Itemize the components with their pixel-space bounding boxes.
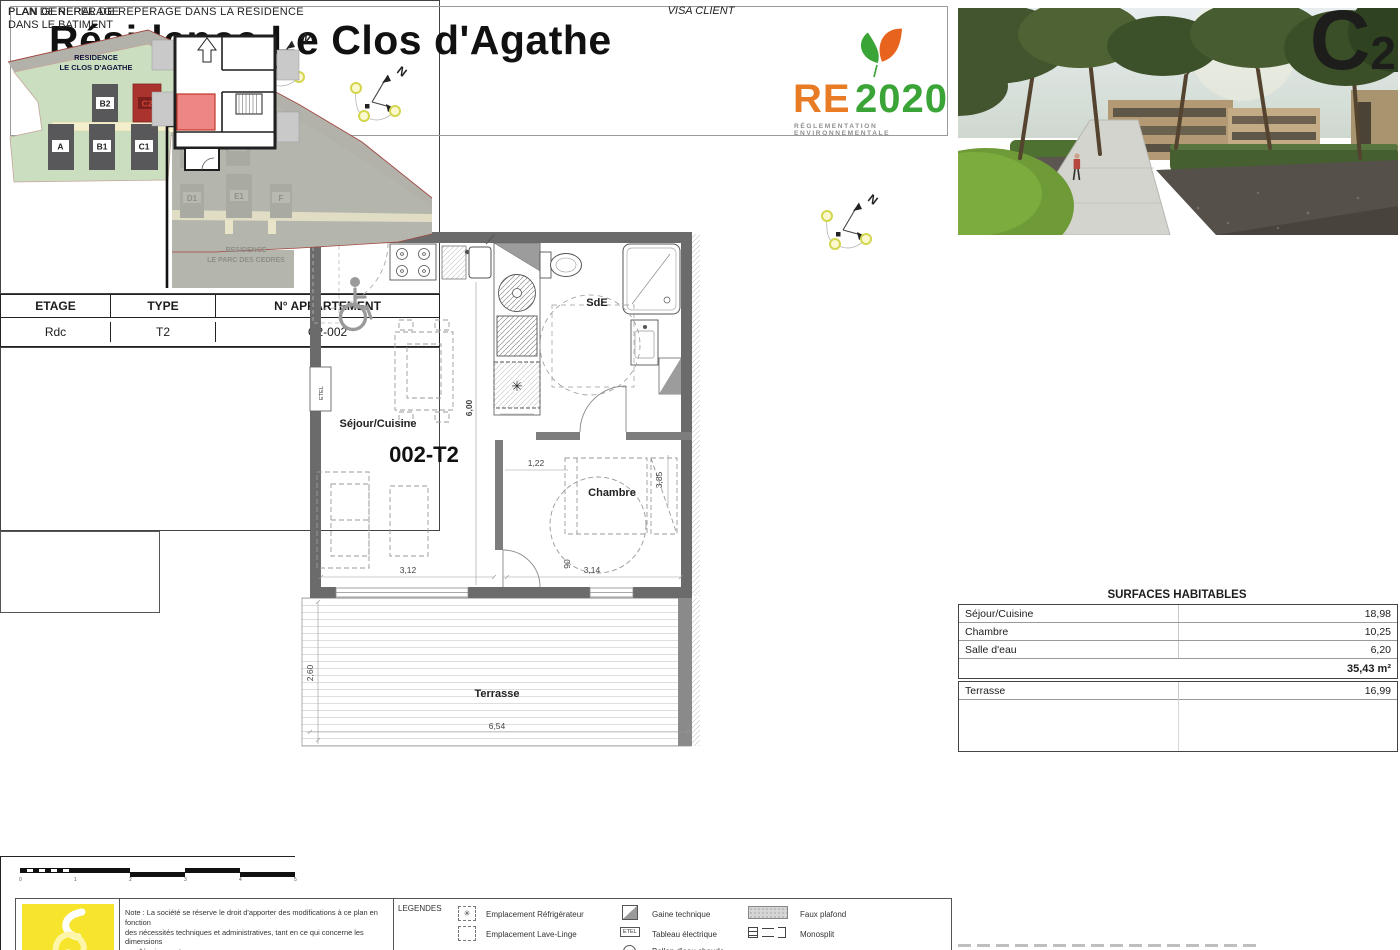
faux-plafond-legend-icon — [748, 906, 788, 919]
terrasse-label: Terrasse — [959, 682, 1179, 699]
scale-tick: 0 — [19, 877, 22, 883]
dim-hall: 1,22 — [528, 458, 545, 468]
note-line: Note : La société se réserve le droit d'… — [125, 908, 385, 928]
surface-row: Chambre 10,25 — [959, 623, 1397, 641]
bathroom-fittings — [540, 244, 681, 395]
scale-bar: 0 1 2 3 4 5 — [20, 868, 295, 880]
etel-legend-icon: ETEL — [620, 927, 640, 937]
room-label-chambre: Chambre — [588, 487, 636, 499]
scale-tick: 4 — [239, 877, 242, 883]
room-label-sejour: Séjour/Cuisine — [339, 418, 416, 430]
north-label: N — [865, 191, 880, 207]
scale-seg-1-2 — [75, 868, 130, 873]
disclaimer-note: Note : La société se réserve le droit d'… — [125, 908, 385, 950]
dim-sejour-w: 3,12 — [400, 565, 417, 575]
etel-label: ETEL — [319, 386, 325, 400]
monosplit-bracket-icon — [778, 927, 786, 938]
legend-title: LEGENDES — [398, 904, 442, 913]
surface-value: 18,98 — [1179, 608, 1397, 620]
vestibule — [185, 148, 219, 170]
stairs-icon — [236, 94, 262, 114]
residence-other-l1: RESIDENCE — [226, 247, 267, 254]
building-label-d1: D1 — [187, 194, 198, 203]
legend-label-monosplit: Monosplit — [800, 930, 834, 939]
building-label-e1: E1 — [234, 192, 244, 201]
fridge-star-icon: ✳ — [511, 378, 523, 394]
room-label-terrasse: Terrasse — [474, 688, 519, 700]
scale-seg-0-1 — [20, 868, 75, 873]
monosplit-lines-icon — [762, 928, 774, 937]
wall-insulation-hatch — [692, 234, 700, 596]
dim-chambre-h: 3,85 — [654, 471, 664, 488]
legend-label-washer: Emplacement Lave-Linge — [486, 930, 577, 939]
developer-logo — [22, 904, 114, 950]
sheet-corner-line-v — [0, 856, 1, 950]
unit-code-label: 002-T2 — [389, 442, 459, 467]
building-label-f: F — [279, 194, 284, 203]
north-label: N — [394, 63, 409, 79]
chambre-door-arc — [503, 550, 540, 587]
gaine-legend-icon — [622, 905, 638, 920]
terrasse-table: Terrasse 16,99 — [958, 681, 1398, 752]
surface-label: Salle d'eau — [959, 641, 1179, 658]
legend-label-etel: Tableau électrique — [652, 930, 717, 939]
terrasse-row: Terrasse 16,99 — [959, 682, 1397, 700]
building-locator-map: N — [0, 0, 436, 180]
fridge-legend-icon: ✳ — [458, 906, 476, 921]
visa-client-label: VISA CLIENT — [1, 5, 1400, 17]
dim-door: 90 — [562, 559, 572, 569]
technical-column: ✳ — [494, 243, 540, 415]
residence-other-l2: LE PARC DES CEDRES — [207, 257, 285, 264]
sheet-letter-index: 2 — [1370, 27, 1396, 79]
scale-tick: 3 — [184, 877, 187, 883]
table-divider — [393, 899, 394, 950]
dim-terrasse-w: 6,54 — [489, 721, 506, 731]
re2020-re: RE — [793, 77, 851, 122]
monosplit-unit-icon — [748, 927, 758, 938]
cropped-text-line — [958, 944, 1258, 947]
legend-label-gaine: Gaine technique — [652, 910, 710, 919]
washer-legend-icon — [458, 926, 476, 941]
scale-tick: 2 — [129, 877, 132, 883]
dim-chambre-w: 3,14 — [584, 565, 601, 575]
scale-seg-4-5 — [240, 872, 295, 877]
shower-icon — [623, 244, 680, 314]
dim-terrasse-h: 2,60 — [305, 664, 315, 681]
surface-value: 6,20 — [1179, 644, 1397, 656]
legend-label-fridge: Emplacement Réfrigérateur — [486, 910, 584, 919]
re2020-subtitle: RÉGLEMENTATION ENVIRONNEMENTALE — [794, 123, 959, 137]
table-divider — [1178, 699, 1179, 751]
surfaces-title: SURFACES HABITABLES — [958, 589, 1396, 601]
etel-board: ETEL — [310, 367, 331, 411]
terrasse-value: 16,99 — [1179, 685, 1397, 697]
surfaces-table: Séjour/Cuisine 18,98 Chambre 10,25 Salle… — [958, 604, 1398, 679]
surface-label: Chambre — [959, 623, 1179, 640]
legend-label-faux: Faux plafond — [800, 910, 846, 919]
monosplit-legend-icon — [748, 926, 786, 939]
table-divider — [119, 899, 120, 950]
toilet-icon — [551, 254, 582, 277]
dim-height: 6,00 — [464, 399, 474, 416]
surface-total: 35,43 m² — [959, 659, 1397, 678]
re2020-year: 2020 — [855, 77, 948, 122]
surface-label: Séjour/Cuisine — [959, 605, 1179, 622]
scale-seg-2-3 — [130, 872, 185, 877]
highlighted-unit — [177, 94, 215, 130]
compass-plan: N — [822, 191, 881, 249]
surface-row: Salle d'eau 6,20 — [959, 641, 1397, 659]
re2020-logo: RE 2020 RÉGLEMENTATION ENVIRONNEMENTALE — [781, 19, 959, 137]
surface-row: Séjour/Cuisine 18,98 — [959, 605, 1397, 623]
sheet-corner-line-h — [0, 856, 295, 857]
scale-seg-3-4 — [185, 868, 240, 873]
scale-tick: 1 — [74, 877, 77, 883]
compass-building: N — [351, 63, 410, 121]
plan-sheet: Résidence Le Clos d'Agathe Chemin du pet… — [0, 0, 1400, 950]
fridge-star-glyph: ✳ — [464, 909, 471, 918]
scale-tick: 5 — [294, 877, 297, 883]
surface-value: 10,25 — [1179, 626, 1397, 638]
note-line: des nécessités techniques et administrat… — [125, 928, 385, 948]
sde-door-opening — [580, 432, 626, 440]
room-label-sde: SdE — [586, 297, 607, 309]
